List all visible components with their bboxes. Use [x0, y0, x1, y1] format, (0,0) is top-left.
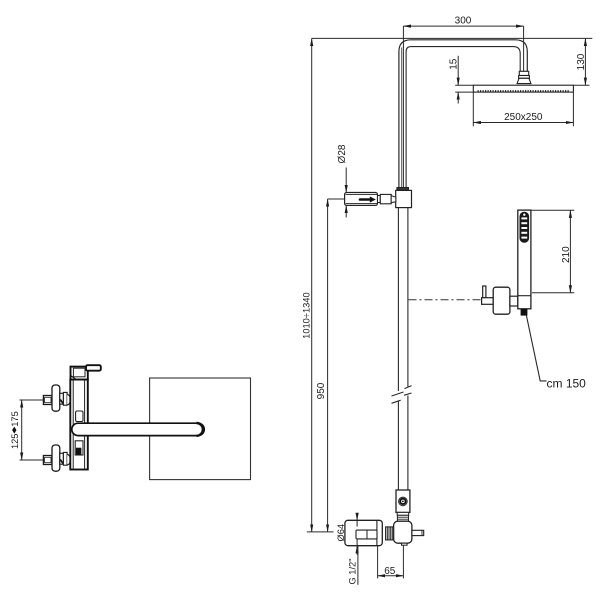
svg-text:175: 175: [10, 411, 20, 427]
svg-text:130: 130: [576, 53, 587, 70]
svg-text:210: 210: [561, 246, 572, 263]
svg-text:15: 15: [449, 58, 460, 70]
svg-text:Ø28: Ø28: [337, 144, 348, 163]
svg-text:950: 950: [316, 382, 327, 399]
svg-text:65: 65: [384, 566, 396, 577]
svg-text:1010÷1340: 1010÷1340: [301, 292, 311, 338]
svg-text:250x250: 250x250: [504, 112, 543, 123]
svg-text:300: 300: [455, 15, 472, 26]
svg-text:G 1/2": G 1/2": [347, 558, 357, 584]
svg-text:cm 150: cm 150: [547, 376, 587, 390]
svg-text:125: 125: [10, 434, 20, 450]
svg-text:Ø64: Ø64: [336, 524, 346, 542]
